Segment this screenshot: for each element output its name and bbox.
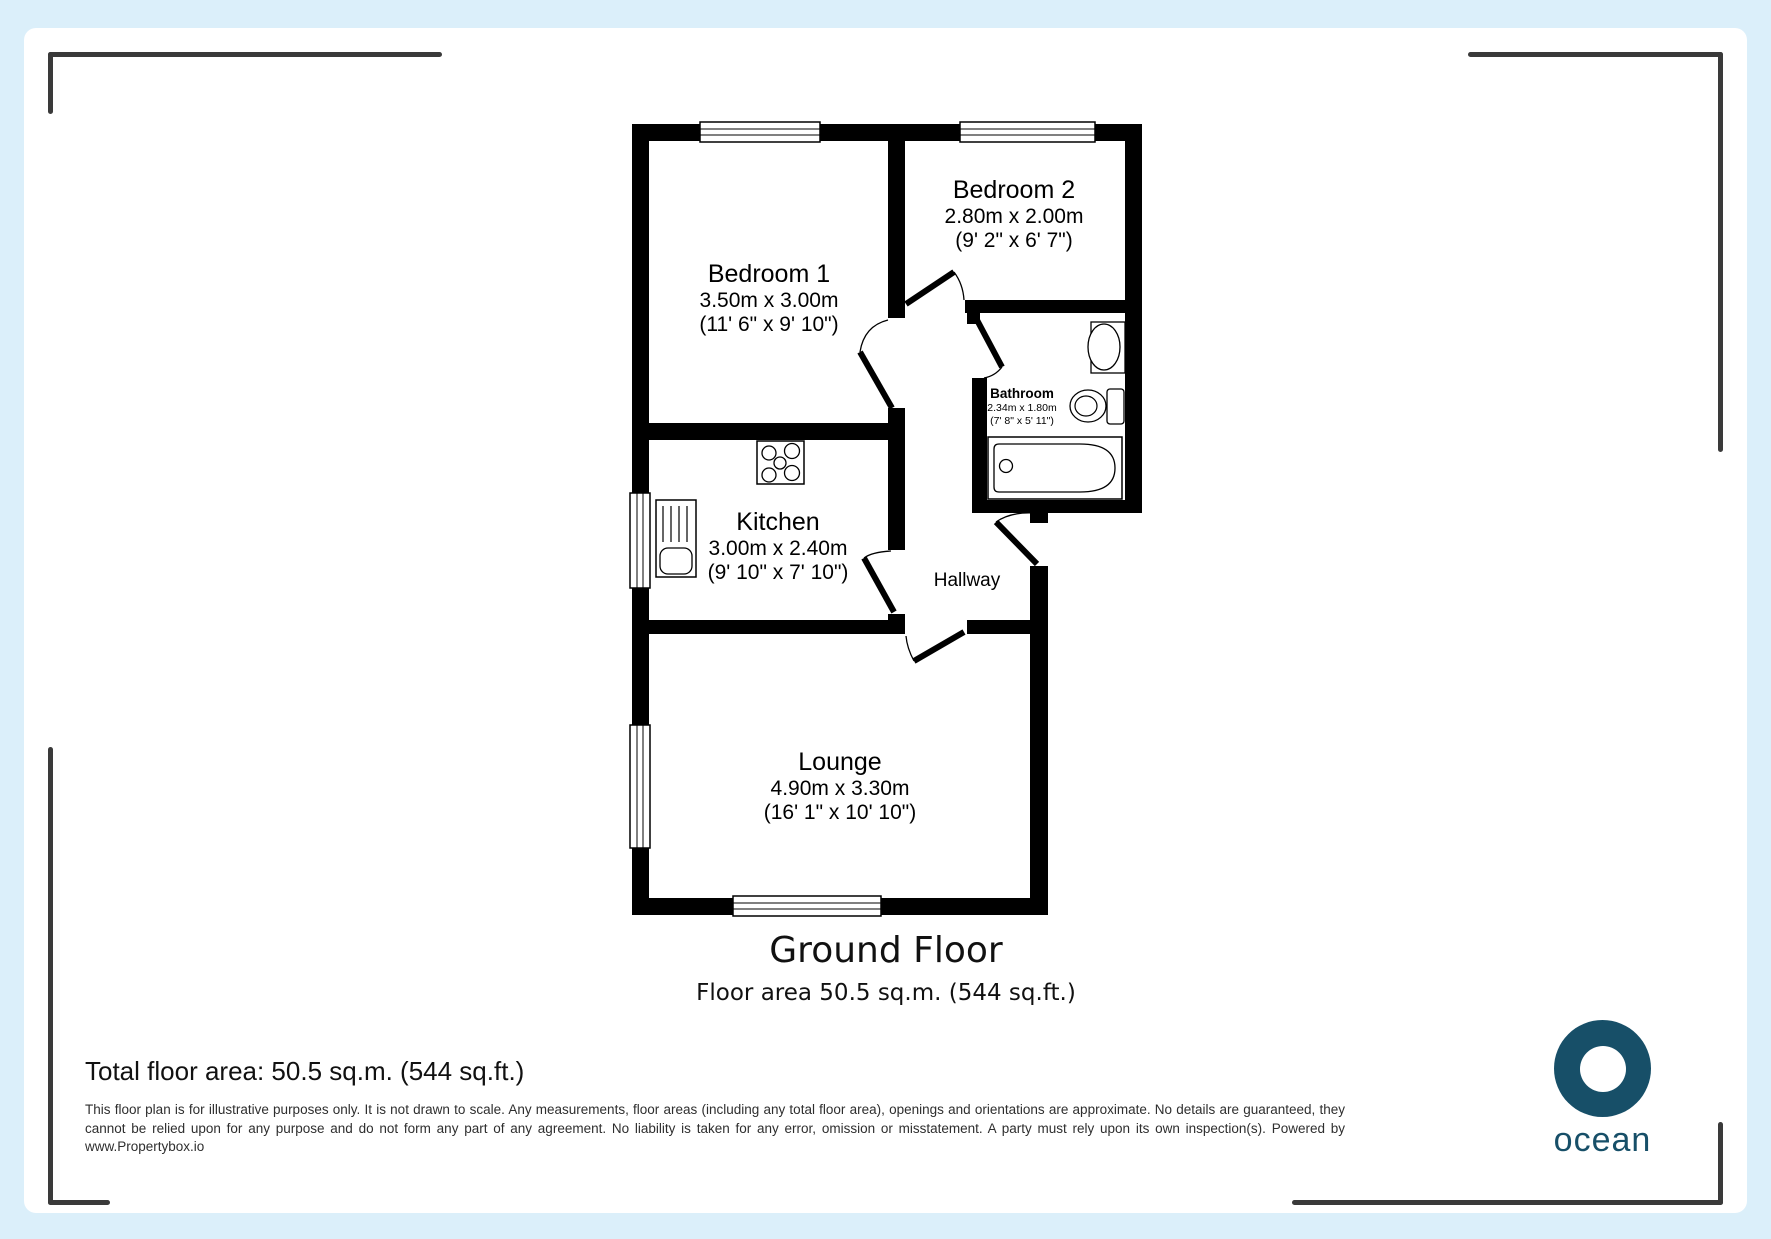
corner-bracket-top-right (1718, 52, 1723, 452)
room-name: Bedroom 1 (650, 260, 888, 289)
room-dims-imperial: (11' 6" x 9' 10") (650, 313, 888, 337)
room-dims-metric: 2.80m x 2.00m (905, 205, 1123, 229)
room-dims-metric: 3.50m x 3.00m (650, 289, 888, 313)
room-dims-imperial: (9' 10" x 7' 10") (660, 561, 896, 585)
corner-bracket-bottom-right (1292, 1200, 1723, 1205)
corner-bracket-top-left (48, 52, 442, 57)
room-label-kitchen: Kitchen 3.00m x 2.40m (9' 10" x 7' 10") (660, 508, 896, 585)
floor-title: Ground Floor (586, 930, 1186, 971)
room-dims-metric: 2.34m x 1.80m (966, 402, 1078, 415)
floorplan-sheet (24, 28, 1747, 1213)
corner-bracket-bottom-right (1718, 1122, 1723, 1205)
room-dims-metric: 4.90m x 3.30m (650, 777, 1030, 801)
room-label-hallway: Hallway (906, 570, 1028, 592)
corner-bracket-bottom-left (48, 747, 53, 1205)
floor-area-caption: Floor area 50.5 sq.m. (544 sq.ft.) (586, 980, 1186, 1006)
room-dims-imperial: (7' 8" x 5' 11") (966, 415, 1078, 428)
room-label-bedroom2: Bedroom 2 2.80m x 2.00m (9' 2" x 6' 7") (905, 176, 1123, 253)
room-dims-imperial: (9' 2" x 6' 7") (905, 229, 1123, 253)
corner-bracket-top-right (1468, 52, 1723, 57)
ocean-logo: ocean (1545, 1020, 1660, 1160)
room-dims-imperial: (16' 1" x 10' 10") (650, 801, 1030, 825)
ocean-logo-text: ocean (1545, 1121, 1660, 1160)
room-label-lounge: Lounge 4.90m x 3.30m (16' 1" x 10' 10") (650, 748, 1030, 825)
ocean-logo-icon (1580, 1046, 1626, 1092)
room-name: Kitchen (660, 508, 896, 537)
room-name: Lounge (650, 748, 1030, 777)
ocean-logo-icon (1554, 1020, 1651, 1117)
corner-bracket-bottom-left (48, 1200, 110, 1205)
room-label-bedroom1: Bedroom 1 3.50m x 3.00m (11' 6" x 9' 10"… (650, 260, 888, 337)
room-name: Hallway (906, 570, 1028, 592)
room-dims-metric: 3.00m x 2.40m (660, 537, 896, 561)
room-name: Bathroom (966, 386, 1078, 402)
floorplan-page: { "canvas": { "background_color": "#dbef… (0, 0, 1771, 1239)
corner-bracket-top-left (48, 52, 53, 114)
total-floor-area: Total floor area: 50.5 sq.m. (544 sq.ft.… (85, 1056, 524, 1087)
room-name: Bedroom 2 (905, 176, 1123, 205)
room-label-bathroom: Bathroom 2.34m x 1.80m (7' 8" x 5' 11") (966, 386, 1078, 427)
disclaimer-text: This floor plan is for illustrative purp… (85, 1101, 1345, 1157)
